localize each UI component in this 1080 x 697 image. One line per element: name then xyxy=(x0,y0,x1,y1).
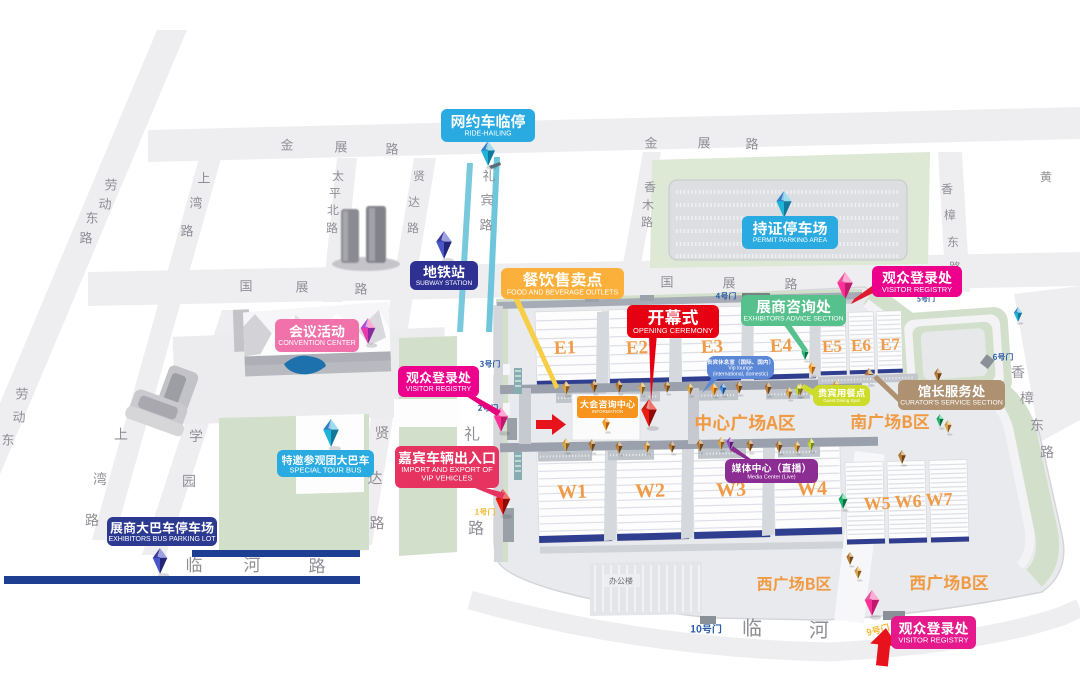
svg-text:W6: W6 xyxy=(894,491,922,512)
svg-text:SUBWAY STATION: SUBWAY STATION xyxy=(416,280,473,287)
svg-text:E3: E3 xyxy=(701,336,724,358)
svg-text:E2: E2 xyxy=(626,337,649,359)
svg-text:E5: E5 xyxy=(822,337,842,357)
svg-text:VISITOR REGISTRY: VISITOR REGISTRY xyxy=(406,386,472,393)
svg-text:IMPORT AND EXPORT OF: IMPORT AND EXPORT OF xyxy=(401,465,493,474)
svg-text:SPECIAL TOUR BUS: SPECIAL TOUR BUS xyxy=(290,466,362,475)
svg-text:W7: W7 xyxy=(925,489,953,510)
svg-text:VIP VEHICLES: VIP VEHICLES xyxy=(421,474,472,483)
svg-text:W5: W5 xyxy=(863,493,891,514)
svg-text:FOOD AND BEVERAGE OUTLETS: FOOD AND BEVERAGE OUTLETS xyxy=(507,289,619,296)
svg-text:W2: W2 xyxy=(635,479,666,502)
svg-text:VISITOR REGISTRY: VISITOR REGISTRY xyxy=(898,636,968,645)
svg-text:Media Center (Live): Media Center (Live) xyxy=(747,474,795,480)
svg-text:E6: E6 xyxy=(851,336,871,356)
svg-text:VISITOR REGISTRY: VISITOR REGISTRY xyxy=(882,285,952,294)
svg-text:RIDE-HAILING: RIDE-HAILING xyxy=(464,131,511,138)
svg-text:(international, domestic): (international, domestic) xyxy=(713,372,769,378)
svg-text:EXHIBITORS BUS PARKING LOT: EXHIBITORS BUS PARKING LOT xyxy=(108,536,216,543)
svg-text:W1: W1 xyxy=(557,480,588,503)
svg-text:CURATOR'S SERVICE SECTION: CURATOR'S SERVICE SECTION xyxy=(900,400,1003,407)
svg-text:OPENING CEREMONY: OPENING CEREMONY xyxy=(633,326,713,335)
svg-text:INFORMATION: INFORMATION xyxy=(592,409,623,414)
svg-text:E4: E4 xyxy=(770,335,793,357)
svg-text:E1: E1 xyxy=(554,337,577,359)
svg-text:PERMIT PARKING AREA: PERMIT PARKING AREA xyxy=(753,237,828,244)
svg-text:CONVENTION CENTER: CONVENTION CENTER xyxy=(278,340,355,347)
svg-text:E7: E7 xyxy=(880,335,901,355)
svg-text:EXHIBITORS ADVICE SECTION: EXHIBITORS ADVICE SECTION xyxy=(744,316,844,323)
svg-text:Guest Dining Spot: Guest Dining Spot xyxy=(823,398,860,403)
